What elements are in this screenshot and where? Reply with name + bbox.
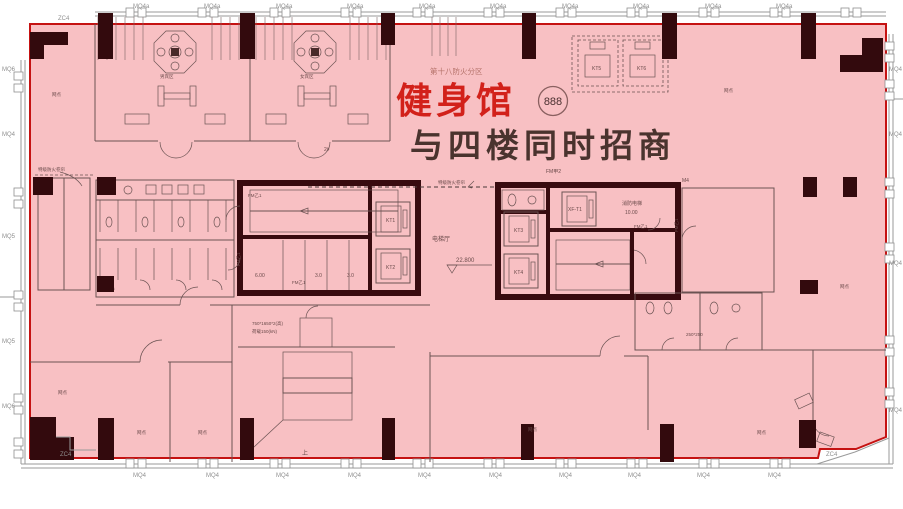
facade-label: ZC4 [60,452,72,458]
facade-label: MQ4 [276,473,290,479]
leasing-subtitle: 与四楼同时招商 [410,127,676,164]
facade-label: MQ4a [276,4,293,10]
fire-shutter-label: 特级防火卷帘 [38,166,65,173]
facade-label: MQ4 [348,473,362,479]
facade-label: MQ4a [562,4,579,10]
shaft-label: 3.0 [347,273,354,279]
direction-label: 上 [302,449,308,457]
facade-label: ZC4 [58,16,70,22]
shaft-label: 6.00 [255,273,265,279]
equipment-label: KT6 [637,66,646,72]
facade-label: MQ4 [206,473,220,479]
facade-label: MQ4 [418,473,432,479]
floor-plan-svg: MQ4a MQ4a MQ4a MQ4a MQ4a MQ4a MQ4a MQ4a … [0,0,903,509]
facade-label: MQ4a [490,4,507,10]
room-label: 男宾区 [160,73,174,80]
lift-label: KT2 [386,265,395,271]
door-tag: FM乙1 [235,252,241,266]
door-tag: FM甲2 [546,169,561,175]
facade-label: MQ4a [705,4,722,10]
facade-label: MQ4a [419,4,436,10]
facade-label: MQ4a [776,4,793,10]
facade-label: MQ4 [889,67,903,73]
door-tag: FM乙1 [634,223,648,229]
facade-label: MQ4a [633,4,650,10]
equipment-label: KT5 [592,66,601,72]
facade-label: MQ5 [2,339,16,345]
dim-label: 750*1650*2(高) [252,320,284,327]
badge-number: 888 [544,96,562,108]
facade-label: MQ4a [204,4,221,10]
level-mark: 22.800 [456,258,475,264]
facade-label: MQ4a [133,4,150,10]
facade-label: MQ4 [768,473,782,479]
lift-label: KT1 [386,218,395,224]
facade-label: MQ4 [489,473,503,479]
facade-label: MQ4 [133,473,147,479]
facade-label: MQ4 [889,261,903,267]
facade-label: MQ4 [559,473,573,479]
facade-label: ZC4 [826,452,838,458]
fire-zone-label: 第十八防火分区 [430,66,483,76]
door-tag: FM乙1 [248,192,262,198]
facade-label: MQ4 [889,132,903,138]
lift-label: KT4 [514,270,523,276]
dim-label: 250*250 [686,332,703,337]
unit-label: 2# [324,147,330,153]
door-tag: M4 [682,178,689,184]
facade-label: MQ6 [2,67,16,73]
facade-label: MQ4 [697,473,711,479]
floor-plan-page: MQ4a MQ4a MQ4a MQ4a MQ4a MQ4a MQ4a MQ4a … [0,0,903,509]
shaft-label: 3.0 [315,273,322,279]
room-label: 电梯厅 [432,235,450,243]
facade-label: MQ4a [347,4,364,10]
facade-label: MQ4 [2,132,16,138]
fire-shutter-label: 特级防火卷帘 [438,179,465,186]
door-tag: FM乙1 [292,279,306,285]
lift-label: KT3 [514,228,523,234]
lift-label: XF-T1 [568,207,582,213]
facade-label: MQ6 [2,404,16,410]
level-mark: 10.00 [625,210,638,216]
dim-label: 荷载150(kN) [252,328,278,335]
door-tag: FM乙1 [673,218,679,232]
facade-label: MQ4 [889,408,903,414]
facade-label: MQ4 [628,473,642,479]
room-label: 消防电梯 [622,200,642,207]
room-label: 女宾区 [300,73,314,80]
venue-title: 健身馆 [396,80,516,121]
facade-label: MQ5 [2,234,16,240]
